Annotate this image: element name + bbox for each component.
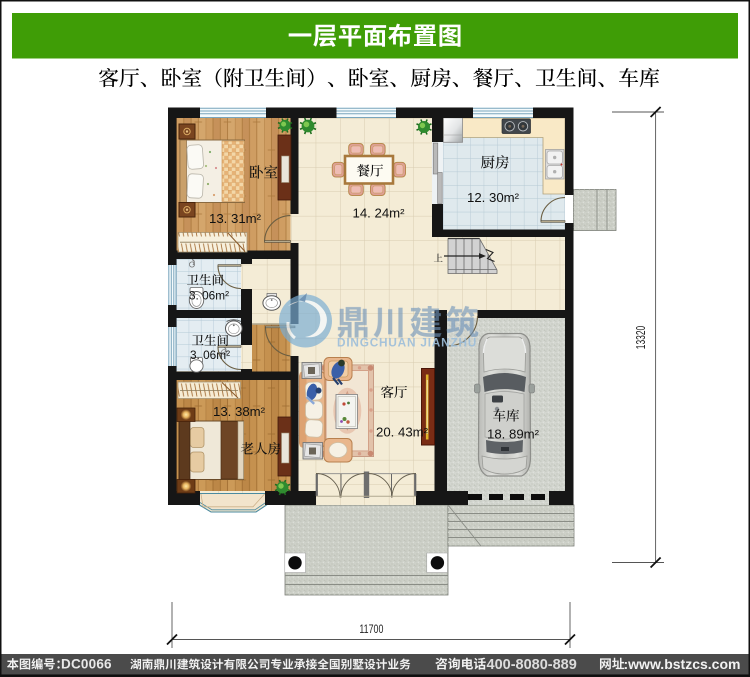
svg-text:11700: 11700: [359, 624, 383, 636]
svg-text:DC0066: DC0066: [61, 657, 112, 672]
svg-text:13. 31m²: 13. 31m²: [209, 211, 262, 226]
svg-text:12. 30m²: 12. 30m²: [467, 190, 520, 205]
svg-text:18. 89m²: 18. 89m²: [487, 427, 540, 442]
svg-text:DINGCHUAN JIANZHU: DINGCHUAN JIANZHU: [337, 336, 477, 350]
svg-text:400-8080-889: 400-8080-889: [487, 657, 577, 673]
svg-text:13320: 13320: [633, 326, 648, 350]
svg-text:14. 24m²: 14. 24m²: [353, 206, 406, 221]
svg-text:3. 06m²: 3. 06m²: [189, 289, 229, 303]
svg-text:13. 38m²: 13. 38m²: [213, 404, 266, 419]
svg-text::www.bstzcs.com: :www.bstzcs.com: [624, 656, 741, 672]
svg-text:20. 43m²: 20. 43m²: [376, 425, 429, 440]
svg-text:3. 06m²: 3. 06m²: [190, 348, 230, 362]
